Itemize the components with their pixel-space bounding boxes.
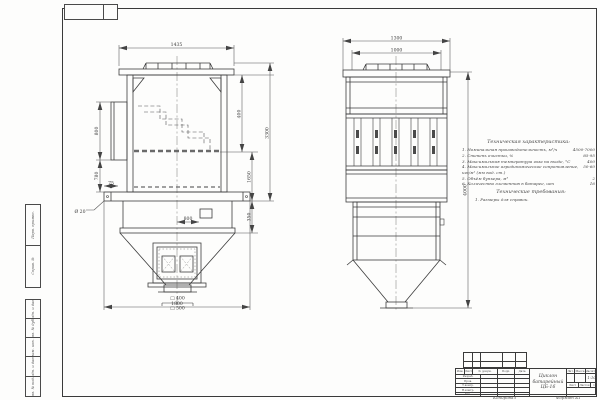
front-inlet — [111, 102, 127, 160]
dim-right-overall: 3300 — [265, 127, 271, 139]
dim-right-small: 350 — [247, 213, 253, 222]
tech-characteristics: Техническая характеристика: 1. Номинальн… — [462, 139, 595, 187]
dim-side-top-inner: 1000 — [391, 48, 403, 54]
side-hopper-cone — [347, 260, 446, 308]
side-dimension-labels: 1300 1000 4000 — [391, 36, 469, 196]
dim-side-top-outer: 1300 — [391, 36, 403, 42]
dim-center-small: 800 — [184, 216, 193, 222]
side-drum — [353, 202, 444, 260]
format-label: Формат А1 — [556, 395, 581, 400]
drawing-sheet: Перв. примен. Справ. № Подп. и дата Инв.… — [0, 0, 600, 400]
dim-plate-hole: Ø 20 — [74, 208, 85, 215]
tb-role: Утв. — [456, 392, 480, 397]
tech-requirements-title: Технические требования: — [475, 189, 587, 195]
copied-label: Копировал — [493, 395, 516, 400]
dim-right-mid: 1650 — [247, 171, 253, 183]
tech-requirements: Технические требования: 1. Размеры для с… — [475, 189, 587, 203]
tech-char-item: 1. Номинальная производительность, м³/ч4… — [462, 147, 595, 152]
dim-right-upper: 400 — [237, 110, 243, 119]
dim-bottom-width: 1800 — [171, 301, 183, 307]
tb-scale-value: 1:10 — [585, 373, 597, 382]
title-block-extension — [463, 352, 527, 368]
front-gas-path — [138, 106, 210, 151]
tech-char-item: 6. Количество элементов в батарее, шт16 — [462, 181, 595, 186]
side-lower-band — [346, 170, 447, 202]
tb-doc-name: Циклон батарейный ЦБ-16 — [529, 369, 566, 396]
front-cover-plate — [119, 69, 234, 75]
tech-char-item: 4. Максимальное аэродинамическое сопроти… — [462, 164, 595, 175]
title-block: Изм. Лист № докум. Подп. Дата Разраб. Пр… — [455, 368, 596, 395]
side-element-section — [346, 114, 447, 170]
side-cover-plate — [343, 70, 450, 77]
dim-outlet-inner: □ 400 — [170, 296, 185, 302]
side-upper-band — [346, 77, 447, 114]
side-view — [343, 56, 450, 312]
tech-char-item: 5. Объём бункера, м³2 — [462, 176, 595, 181]
dim-plate-small: 75 — [108, 181, 114, 187]
dim-top-width: 1435 — [171, 42, 183, 48]
front-skirt — [120, 201, 235, 233]
front-fitting — [200, 209, 212, 218]
side-hatch — [363, 64, 430, 70]
front-hopper-cone — [120, 233, 235, 306]
tech-characteristics-title: Техническая характеристика: — [462, 139, 595, 145]
front-view — [104, 56, 250, 307]
tech-req-item: 1. Размеры для справок. — [475, 197, 587, 202]
tech-char-item: 3. Максимальная температура газа на вход… — [462, 159, 595, 164]
tech-char-item: 2. Степень очистки, %85-95 — [462, 153, 595, 158]
dim-left-upper: 800 — [94, 127, 100, 136]
side-dimensions — [343, 38, 472, 308]
front-hatch — [143, 63, 213, 69]
dim-left-lower: 780 — [94, 172, 100, 181]
